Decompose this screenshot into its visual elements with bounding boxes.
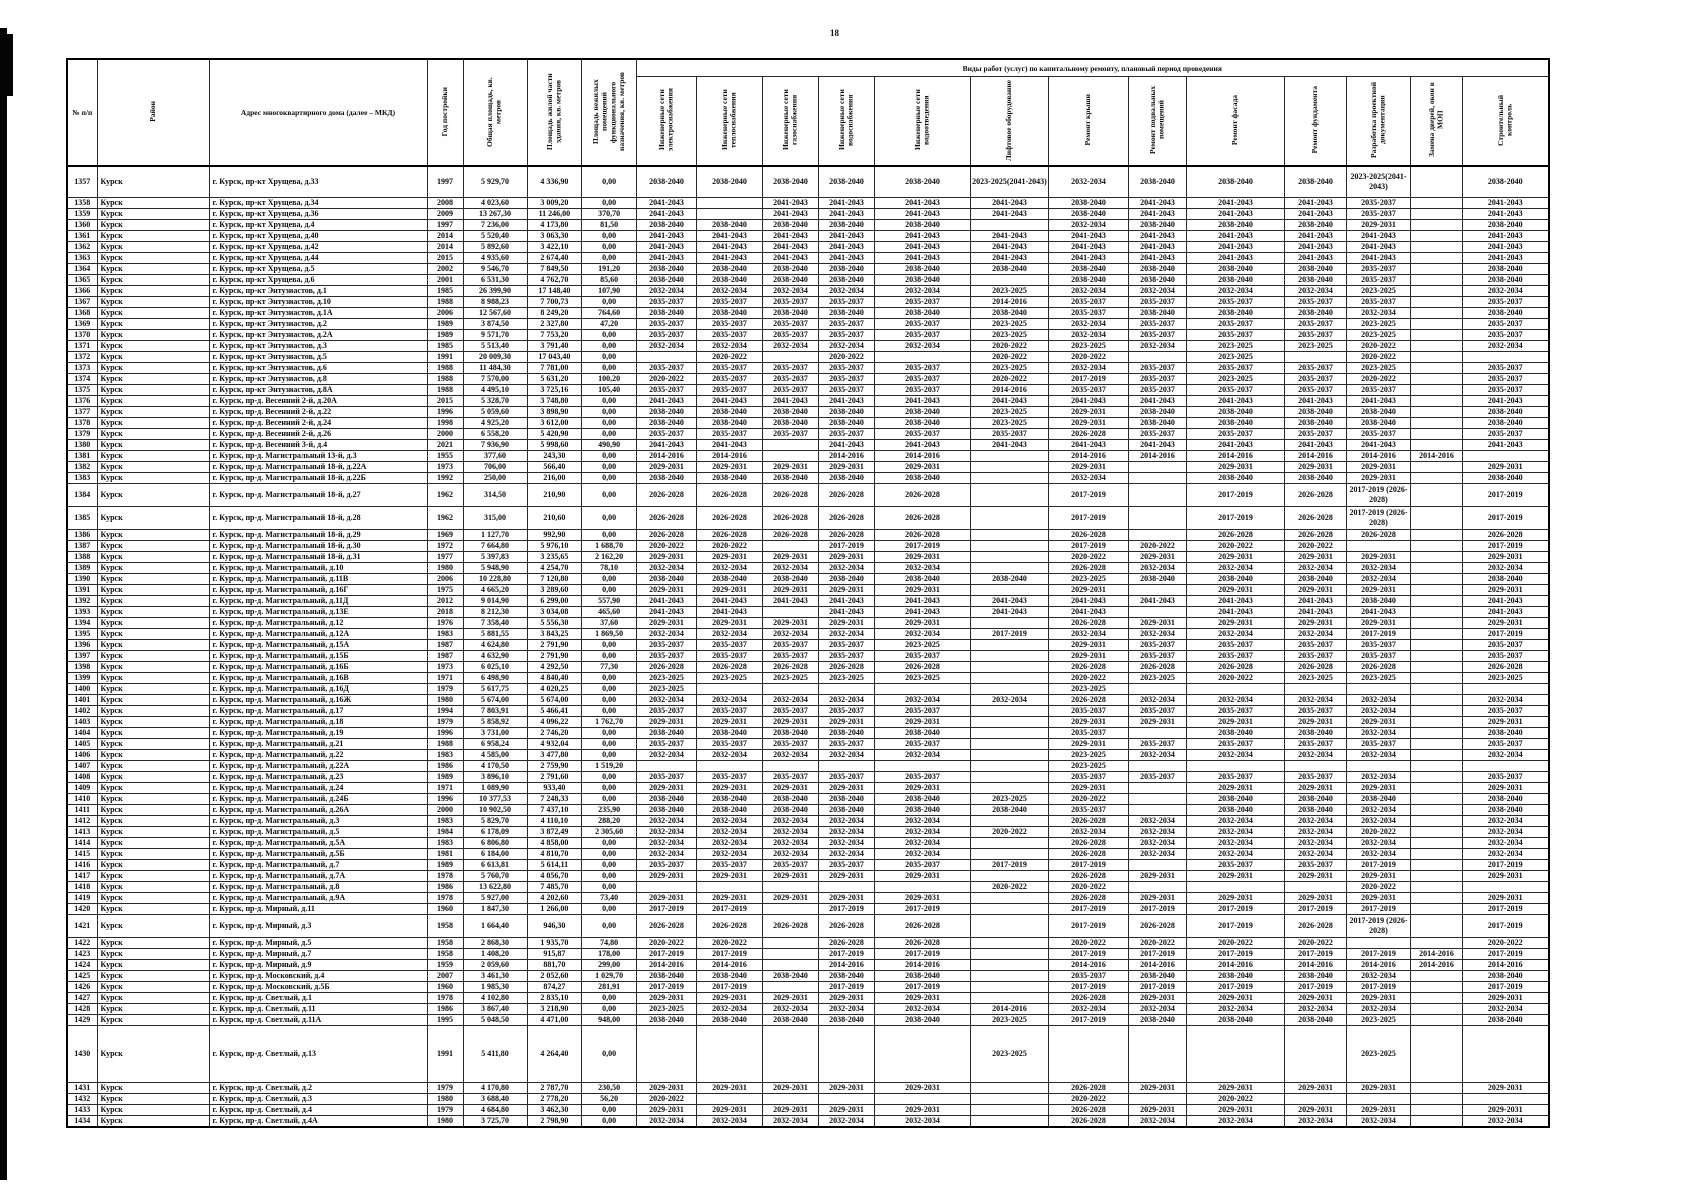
cell-roof-repair: 2026-2028 <box>1049 893 1129 904</box>
cell-total-area: 3 461,30 <box>463 971 527 982</box>
table-row: 1381Курскг. Курск, пр-д. Магистральный 1… <box>67 451 1549 462</box>
cell-water-supply-networks: 2026-2028 <box>819 530 875 541</box>
cell-year-built: 1987 <box>427 651 463 662</box>
cell-doors-windows-replacement <box>1411 629 1463 640</box>
cell-district: Курск <box>97 585 209 596</box>
cell-nonliving-area: 0,00 <box>582 585 637 596</box>
cell-address: г. Курск, пр-д. Магистральный, д.5Б <box>209 849 427 860</box>
cell-design-documentation: 2017-2019 <box>1347 860 1411 871</box>
cell-electricity-networks: 2020-2022 <box>637 374 697 385</box>
cell-gas-networks <box>763 352 819 363</box>
cell-design-documentation: 2032-2034 <box>1347 1004 1411 1015</box>
cell-facade-repair: 2038-2040 <box>1187 473 1285 484</box>
cell-living-area: 566,40 <box>527 462 582 473</box>
table-row: 1410Курскг. Курск, пр-д. Магистральный, … <box>67 794 1549 805</box>
cell-construction-control: 2017-2019 <box>1463 915 1549 938</box>
cell-address: г. Курск, пр-д. Магистральный, д.7 <box>209 860 427 871</box>
col-header-sewerage-networks-label: Инженерные сети водоотведения <box>914 78 931 162</box>
cell-design-documentation: 2017-2019 <box>1347 982 1411 993</box>
cell-total-area: 10 228,80 <box>463 574 527 585</box>
cell-total-area: 11 484,30 <box>463 363 527 374</box>
cell-electricity-networks: 2041-2043 <box>637 253 697 264</box>
cell-sewerage-networks: 2029-2031 <box>875 462 971 473</box>
cell-foundation-repair: 2038-2040 <box>1285 308 1347 319</box>
cell-elevator-equipment <box>971 838 1049 849</box>
cell-row-number: 1396 <box>67 640 97 651</box>
cell-district: Курск <box>97 1094 209 1105</box>
cell-row-number: 1382 <box>67 462 97 473</box>
capital-repair-program-table: № п/п Район Адрес многоквартирного дома … <box>66 58 1550 1128</box>
cell-construction-control: 2029-2031 <box>1463 552 1549 563</box>
cell-construction-control: 2017-2019 <box>1463 541 1549 552</box>
cell-roof-repair: 2026-2028 <box>1049 871 1129 882</box>
cell-design-documentation: 2032-2034 <box>1347 805 1411 816</box>
cell-heating-networks <box>697 1026 763 1083</box>
cell-foundation-repair: 2020-2022 <box>1285 938 1347 949</box>
cell-foundation-repair: 2041-2043 <box>1285 596 1347 607</box>
cell-electricity-networks: 2038-2040 <box>637 728 697 739</box>
cell-address: г. Курск, пр-д. Весенний 2-й, д.22 <box>209 407 427 418</box>
cell-elevator-equipment <box>971 728 1049 739</box>
cell-water-supply-networks: 2038-2040 <box>819 308 875 319</box>
cell-row-number: 1421 <box>67 915 97 938</box>
cell-district: Курск <box>97 352 209 363</box>
cell-water-supply-networks: 2017-2019 <box>819 982 875 993</box>
cell-living-area: 17 148,40 <box>527 286 582 297</box>
cell-heating-networks: 2041-2043 <box>697 253 763 264</box>
cell-design-documentation: 2035-2037 <box>1347 198 1411 209</box>
table-row: 1418Курскг. Курск, пр-д. Магистральный, … <box>67 882 1549 893</box>
cell-electricity-networks: 2020-2022 <box>637 541 697 552</box>
cell-living-area: 2 835,10 <box>527 993 582 1004</box>
table-row: 1395Курскг. Курск, пр-д. Магистральный, … <box>67 629 1549 640</box>
cell-year-built: 1979 <box>427 1083 463 1094</box>
cell-design-documentation: 2029-2031 <box>1347 473 1411 484</box>
cell-elevator-equipment <box>971 1083 1049 1094</box>
cell-design-documentation: 2020-2022 <box>1347 352 1411 363</box>
cell-doors-windows-replacement <box>1411 166 1463 198</box>
cell-address: г. Курск, пр-д. Магистральный 18-й, д.29 <box>209 530 427 541</box>
cell-heating-networks: 2026-2028 <box>697 530 763 541</box>
cell-total-area: 7 358,40 <box>463 618 527 629</box>
cell-gas-networks: 2035-2037 <box>763 706 819 717</box>
cell-row-number: 1362 <box>67 242 97 253</box>
cell-gas-networks <box>763 541 819 552</box>
cell-electricity-networks: 2041-2043 <box>637 596 697 607</box>
cell-doors-windows-replacement <box>1411 220 1463 231</box>
cell-electricity-networks: 2038-2040 <box>637 794 697 805</box>
cell-nonliving-area: 0,00 <box>582 640 637 651</box>
cell-electricity-networks: 2032-2034 <box>637 695 697 706</box>
cell-gas-networks: 2035-2037 <box>763 429 819 440</box>
cell-gas-networks: 2026-2028 <box>763 915 819 938</box>
cell-basement-repair <box>1129 882 1187 893</box>
cell-design-documentation: 2023-2025 <box>1347 673 1411 684</box>
cell-living-area: 5 998,60 <box>527 440 582 451</box>
cell-facade-repair: 2023-2025 <box>1187 374 1285 385</box>
cell-row-number: 1415 <box>67 849 97 860</box>
cell-year-built: 1996 <box>427 794 463 805</box>
cell-electricity-networks: 2014-2016 <box>637 451 697 462</box>
cell-elevator-equipment: 2023-2025 <box>971 286 1049 297</box>
cell-total-area: 7 936,90 <box>463 440 527 451</box>
cell-heating-networks: 2035-2037 <box>697 651 763 662</box>
cell-heating-networks: 2041-2043 <box>697 607 763 618</box>
cell-foundation-repair: 2032-2034 <box>1285 286 1347 297</box>
cell-foundation-repair: 2041-2043 <box>1285 396 1347 407</box>
cell-water-supply-networks: 2041-2043 <box>819 440 875 451</box>
cell-electricity-networks: 2035-2037 <box>637 385 697 396</box>
cell-total-area: 4 624,80 <box>463 640 527 651</box>
cell-basement-repair: 2029-2031 <box>1129 893 1187 904</box>
cell-water-supply-networks: 2032-2034 <box>819 827 875 838</box>
cell-basement-repair <box>1129 783 1187 794</box>
table-row: 1389Курскг. Курск, пр-д. Магистральный, … <box>67 563 1549 574</box>
cell-total-area: 8 988,23 <box>463 297 527 308</box>
cell-elevator-equipment <box>971 220 1049 231</box>
cell-district: Курск <box>97 750 209 761</box>
cell-roof-repair: 2041-2043 <box>1049 231 1129 242</box>
cell-basement-repair: 2038-2040 <box>1129 418 1187 429</box>
cell-address: г. Курск, пр-д. Московский, д.5Б <box>209 982 427 993</box>
cell-year-built: 1986 <box>427 761 463 772</box>
cell-row-number: 1381 <box>67 451 97 462</box>
cell-nonliving-area: 1 688,70 <box>582 541 637 552</box>
cell-foundation-repair: 2026-2028 <box>1285 915 1347 938</box>
cell-nonliving-area: 0,00 <box>582 860 637 871</box>
cell-year-built: 1955 <box>427 451 463 462</box>
cell-address: г. Курск, пр-д. Светлый, д.13 <box>209 1026 427 1083</box>
cell-design-documentation: 2023-2025 <box>1347 330 1411 341</box>
cell-district: Курск <box>97 783 209 794</box>
cell-nonliving-area: 0,00 <box>582 352 637 363</box>
cell-address: г. Курск, пр-д. Магистральный, д.17 <box>209 706 427 717</box>
cell-gas-networks <box>763 761 819 772</box>
cell-foundation-repair <box>1285 882 1347 893</box>
cell-living-area: 5 614,11 <box>527 860 582 871</box>
cell-nonliving-area: 1 029,70 <box>582 971 637 982</box>
cell-total-area: 4 495,10 <box>463 385 527 396</box>
cell-heating-networks: 2017-2019 <box>697 982 763 993</box>
cell-heating-networks <box>697 882 763 893</box>
cell-nonliving-area: 0,00 <box>582 750 637 761</box>
cell-elevator-equipment: 2041-2043 <box>971 607 1049 618</box>
cell-address: г. Курск, пр-д. Магистральный 13-й, д.3 <box>209 451 427 462</box>
cell-construction-control: 2032-2034 <box>1463 1004 1549 1015</box>
cell-nonliving-area: 1 519,20 <box>582 761 637 772</box>
cell-foundation-repair: 2041-2043 <box>1285 440 1347 451</box>
table-row: 1423Курскг. Курск, пр-д. Мирный, д.71958… <box>67 949 1549 960</box>
cell-construction-control: 2029-2031 <box>1463 585 1549 596</box>
cell-foundation-repair: 2038-2040 <box>1285 275 1347 286</box>
cell-nonliving-area: 0,00 <box>582 242 637 253</box>
cell-roof-repair: 2020-2022 <box>1049 552 1129 563</box>
cell-address: г. Курск, пр-кт Хрущева, д.4 <box>209 220 427 231</box>
cell-doors-windows-replacement <box>1411 827 1463 838</box>
cell-sewerage-networks: 2032-2034 <box>875 838 971 849</box>
cell-roof-repair: 2017-2019 <box>1049 860 1129 871</box>
cell-basement-repair: 2020-2022 <box>1129 541 1187 552</box>
cell-nonliving-area: 0,00 <box>582 728 637 739</box>
cell-basement-repair <box>1129 1094 1187 1105</box>
col-header-design-documentation-label: Разработка проектной документации <box>1370 78 1387 162</box>
cell-electricity-networks: 2035-2037 <box>637 640 697 651</box>
cell-water-supply-networks: 2035-2037 <box>819 385 875 396</box>
cell-electricity-networks: 2029-2031 <box>637 462 697 473</box>
cell-heating-networks: 2038-2040 <box>697 220 763 231</box>
cell-heating-networks: 2026-2028 <box>697 484 763 507</box>
cell-foundation-repair: 2041-2043 <box>1285 607 1347 618</box>
cell-doors-windows-replacement <box>1411 484 1463 507</box>
table-row: 1378Курскг. Курск, пр-д. Весенний 2-й, д… <box>67 418 1549 429</box>
cell-water-supply-networks: 2029-2031 <box>819 585 875 596</box>
cell-row-number: 1371 <box>67 341 97 352</box>
cell-basement-repair <box>1129 794 1187 805</box>
cell-basement-repair <box>1129 1026 1187 1083</box>
cell-roof-repair: 2017-2019 <box>1049 904 1129 915</box>
cell-doors-windows-replacement <box>1411 418 1463 429</box>
cell-row-number: 1372 <box>67 352 97 363</box>
cell-elevator-equipment <box>971 739 1049 750</box>
cell-facade-repair: 2029-2031 <box>1187 893 1285 904</box>
cell-row-number: 1363 <box>67 253 97 264</box>
cell-facade-repair: 2038-2040 <box>1187 166 1285 198</box>
cell-electricity-networks: 2023-2025 <box>637 1004 697 1015</box>
col-header-facade-repair-label: Ремонт фасада <box>1231 95 1240 145</box>
cell-year-built: 1979 <box>427 717 463 728</box>
cell-doors-windows-replacement <box>1411 530 1463 541</box>
cell-district: Курск <box>97 330 209 341</box>
cell-total-area: 2 868,30 <box>463 938 527 949</box>
table-row: 1385Курскг. Курск, пр-д. Магистральный 1… <box>67 507 1549 530</box>
cell-year-built: 1986 <box>427 1004 463 1015</box>
cell-foundation-repair: 2023-2025 <box>1285 341 1347 352</box>
cell-living-area: 2 778,20 <box>527 1094 582 1105</box>
cell-address: г. Курск, пр-кт Хрущева, д.40 <box>209 231 427 242</box>
cell-water-supply-networks: 2038-2040 <box>819 574 875 585</box>
cell-design-documentation: 2035-2037 <box>1347 385 1411 396</box>
cell-heating-networks: 2032-2034 <box>697 827 763 838</box>
cell-nonliving-area: 81,50 <box>582 220 637 231</box>
cell-foundation-repair: 2029-2031 <box>1285 993 1347 1004</box>
cell-district: Курск <box>97 938 209 949</box>
col-header-nonliving-area: Площадь нежилых помещений функциональног… <box>582 59 637 166</box>
cell-row-number: 1426 <box>67 982 97 993</box>
cell-facade-repair: 2041-2043 <box>1187 596 1285 607</box>
cell-foundation-repair: 2032-2034 <box>1285 838 1347 849</box>
cell-nonliving-area: 0,00 <box>582 739 637 750</box>
table-row: 1379Курскг. Курск, пр-д. Весенний 2-й, д… <box>67 429 1549 440</box>
cell-design-documentation: 2026-2028 <box>1347 530 1411 541</box>
cell-year-built: 1998 <box>427 418 463 429</box>
cell-electricity-networks: 2035-2037 <box>637 651 697 662</box>
cell-basement-repair: 2035-2037 <box>1129 297 1187 308</box>
cell-construction-control <box>1463 761 1549 772</box>
cell-elevator-equipment: 2041-2043 <box>971 440 1049 451</box>
cell-construction-control: 2035-2037 <box>1463 297 1549 308</box>
cell-total-area: 1 089,90 <box>463 783 527 794</box>
cell-design-documentation: 2032-2034 <box>1347 971 1411 982</box>
cell-total-area: 9 014,90 <box>463 596 527 607</box>
cell-year-built: 1991 <box>427 1026 463 1083</box>
cell-electricity-networks: 2035-2037 <box>637 860 697 871</box>
cell-living-area: 5 556,30 <box>527 618 582 629</box>
cell-construction-control: 2038-2040 <box>1463 264 1549 275</box>
cell-electricity-networks: 2038-2040 <box>637 220 697 231</box>
cell-roof-repair: 2029-2031 <box>1049 640 1129 651</box>
cell-foundation-repair: 2038-2040 <box>1285 971 1347 982</box>
cell-gas-networks: 2032-2034 <box>763 341 819 352</box>
table-row: 1426Курскг. Курск, пр-д. Московский, д.5… <box>67 982 1549 993</box>
cell-sewerage-networks: 2038-2040 <box>875 166 971 198</box>
cell-facade-repair: 2041-2043 <box>1187 396 1285 407</box>
cell-district: Курск <box>97 816 209 827</box>
cell-total-area: 13 622,80 <box>463 882 527 893</box>
cell-basement-repair: 2032-2034 <box>1129 1004 1187 1015</box>
cell-construction-control <box>1463 451 1549 462</box>
cell-elevator-equipment <box>971 717 1049 728</box>
cell-address: г. Курск, пр-кт Энтузиастов, д.2А <box>209 330 427 341</box>
cell-basement-repair: 2035-2037 <box>1129 330 1187 341</box>
cell-nonliving-area: 0,00 <box>582 396 637 407</box>
cell-doors-windows-replacement <box>1411 541 1463 552</box>
cell-elevator-equipment <box>971 783 1049 794</box>
cell-heating-networks: 2020-2022 <box>697 541 763 552</box>
cell-elevator-equipment: 2023-2025 <box>971 363 1049 374</box>
cell-water-supply-networks: 2035-2037 <box>819 651 875 662</box>
cell-total-area: 8 212,30 <box>463 607 527 618</box>
cell-construction-control: 2029-2031 <box>1463 717 1549 728</box>
cell-sewerage-networks: 2014-2016 <box>875 960 971 971</box>
cell-construction-control: 2032-2034 <box>1463 838 1549 849</box>
cell-electricity-networks: 2038-2040 <box>637 1015 697 1026</box>
table-row: 1404Курскг. Курск, пр-д. Магистральный, … <box>67 728 1549 739</box>
cell-roof-repair: 2041-2043 <box>1049 253 1129 264</box>
cell-nonliving-area: 0,00 <box>582 915 637 938</box>
cell-electricity-networks: 2032-2034 <box>637 816 697 827</box>
cell-sewerage-networks: 2026-2028 <box>875 484 971 507</box>
cell-doors-windows-replacement <box>1411 308 1463 319</box>
cell-living-area: 2 798,90 <box>527 1116 582 1128</box>
cell-facade-repair: 2038-2040 <box>1187 264 1285 275</box>
cell-row-number: 1370 <box>67 330 97 341</box>
cell-living-area: 933,40 <box>527 783 582 794</box>
cell-address: г. Курск, пр-кт Энтузиастов, д.2 <box>209 319 427 330</box>
cell-design-documentation <box>1347 938 1411 949</box>
cell-design-documentation: 2035-2037 <box>1347 275 1411 286</box>
cell-doors-windows-replacement <box>1411 805 1463 816</box>
cell-district: Курск <box>97 706 209 717</box>
cell-nonliving-area: 0,00 <box>582 993 637 1004</box>
cell-address: г. Курск, пр-д. Магистральный 18-й, д.27 <box>209 484 427 507</box>
cell-living-area: 3 725,16 <box>527 385 582 396</box>
cell-heating-networks: 2038-2040 <box>697 418 763 429</box>
table-row: 1411Курскг. Курск, пр-д. Магистральный, … <box>67 805 1549 816</box>
cell-elevator-equipment <box>971 1105 1049 1116</box>
cell-address: г. Курск, пр-д. Весенний 2-й, д.24 <box>209 418 427 429</box>
cell-construction-control: 2032-2034 <box>1463 1116 1549 1128</box>
cell-water-supply-networks: 2035-2037 <box>819 860 875 871</box>
col-header-heating-networks: Инженерные сети теплоснабжения <box>697 77 763 167</box>
cell-doors-windows-replacement <box>1411 429 1463 440</box>
cell-doors-windows-replacement <box>1411 993 1463 1004</box>
cell-design-documentation: 2029-2031 <box>1347 552 1411 563</box>
cell-construction-control: 2035-2037 <box>1463 651 1549 662</box>
cell-total-area: 13 267,30 <box>463 209 527 220</box>
cell-facade-repair: 2017-2019 <box>1187 915 1285 938</box>
cell-year-built: 1962 <box>427 484 463 507</box>
cell-roof-repair: 2035-2037 <box>1049 706 1129 717</box>
cell-district: Курск <box>97 541 209 552</box>
cell-roof-repair: 2032-2034 <box>1049 286 1129 297</box>
cell-district: Курск <box>97 286 209 297</box>
cell-doors-windows-replacement <box>1411 783 1463 794</box>
cell-elevator-equipment <box>971 706 1049 717</box>
cell-basement-repair: 2029-2031 <box>1129 717 1187 728</box>
cell-electricity-networks: 2029-2031 <box>637 993 697 1004</box>
cell-living-area: 3 034,08 <box>527 607 582 618</box>
cell-district: Курск <box>97 319 209 330</box>
table-header: № п/п Район Адрес многоквартирного дома … <box>67 59 1549 166</box>
cell-district: Курск <box>97 971 209 982</box>
cell-water-supply-networks: 2029-2031 <box>819 783 875 794</box>
cell-sewerage-networks: 2038-2040 <box>875 473 971 484</box>
cell-gas-networks: 2032-2034 <box>763 629 819 640</box>
cell-doors-windows-replacement <box>1411 860 1463 871</box>
cell-roof-repair: 2032-2034 <box>1049 220 1129 231</box>
cell-nonliving-area: 73,40 <box>582 893 637 904</box>
scan-edge-artifact <box>0 28 7 1180</box>
cell-total-area: 3 896,10 <box>463 772 527 783</box>
cell-nonliving-area: 0,00 <box>582 341 637 352</box>
cell-living-area: 17 043,40 <box>527 352 582 363</box>
cell-heating-networks: 2017-2019 <box>697 904 763 915</box>
table-row: 1416Курскг. Курск, пр-д. Магистральный, … <box>67 860 1549 871</box>
cell-sewerage-networks: 2017-2019 <box>875 541 971 552</box>
cell-sewerage-networks: 2035-2037 <box>875 363 971 374</box>
cell-heating-networks: 2032-2034 <box>697 1116 763 1128</box>
cell-design-documentation: 2029-2031 <box>1347 618 1411 629</box>
cell-water-supply-networks: 2029-2031 <box>819 893 875 904</box>
cell-address: г. Курск, пр-кт Энтузиастов, д.8 <box>209 374 427 385</box>
cell-row-number: 1390 <box>67 574 97 585</box>
cell-living-area: 946,30 <box>527 915 582 938</box>
cell-electricity-networks: 2041-2043 <box>637 198 697 209</box>
col-header-district-label: Район <box>149 101 158 122</box>
cell-gas-networks: 2032-2034 <box>763 1116 819 1128</box>
cell-electricity-networks: 2017-2019 <box>637 904 697 915</box>
cell-heating-networks: 2035-2037 <box>697 363 763 374</box>
cell-row-number: 1374 <box>67 374 97 385</box>
cell-year-built: 1983 <box>427 629 463 640</box>
cell-facade-repair: 2017-2019 <box>1187 484 1285 507</box>
cell-nonliving-area: 0,00 <box>582 673 637 684</box>
cell-facade-repair: 2035-2037 <box>1187 772 1285 783</box>
cell-construction-control: 2023-2025 <box>1463 673 1549 684</box>
cell-basement-repair: 2041-2043 <box>1129 440 1187 451</box>
cell-foundation-repair: 2041-2043 <box>1285 231 1347 242</box>
cell-year-built: 1980 <box>427 695 463 706</box>
scan-edge-artifact-top <box>0 34 13 96</box>
cell-living-area: 915,87 <box>527 949 582 960</box>
cell-elevator-equipment <box>971 552 1049 563</box>
cell-elevator-equipment: 2038-2040 <box>971 805 1049 816</box>
cell-electricity-networks: 2035-2037 <box>637 319 697 330</box>
cell-elevator-equipment <box>971 750 1049 761</box>
cell-foundation-repair: 2038-2040 <box>1285 220 1347 231</box>
cell-design-documentation: 2035-2037 <box>1347 209 1411 220</box>
cell-construction-control: 2041-2043 <box>1463 242 1549 253</box>
